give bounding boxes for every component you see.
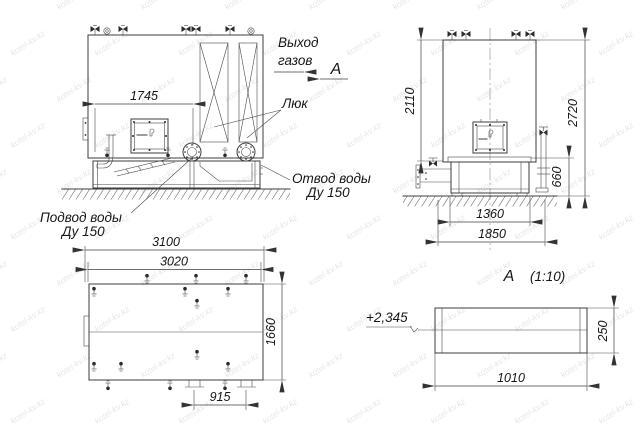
boiler-drawing: 1745 Выход газов А Люк Отвод воды Ду 150… [0,0,644,430]
left-wall-bracket [83,118,88,140]
plan-left-notch [84,316,89,346]
bottom-flange-tabs [185,380,256,387]
door-lock-icon [489,130,493,137]
svg-text:3100: 3100 [152,235,180,249]
dim-1745: 1745 [95,89,193,152]
svg-text:2110: 2110 [403,88,417,116]
detail-a-scale: (1:10) [530,269,565,284]
tank-body-side [443,40,536,162]
water-outlet-flange [237,143,255,161]
gas-duct-hatches [200,43,257,142]
svg-text:660: 660 [550,167,564,188]
valve-icon [192,26,201,36]
svg-text:+2,345: +2,345 [366,310,408,325]
valve-icon [182,26,191,36]
svg-text:3020: 3020 [160,255,188,269]
lifting-lug-icon [104,28,110,34]
drain-pan [200,162,252,181]
view-a-mark: А [330,61,342,78]
valve-handwheel-icon [539,127,548,136]
valve-icon [512,31,521,41]
svg-text:2720: 2720 [566,99,580,128]
detail-a-letter: А [503,268,515,285]
inlet-pipe-elbow [97,135,116,168]
water-inlet-size: Ду 150 [60,224,105,239]
water-outlet-label: Отвод воды [292,171,371,186]
front-annotations: Выход газов А Люк Отвод воды Ду 150 Подв… [40,35,371,239]
duct-section-outline [435,308,587,353]
dim-250: 250 [587,308,619,353]
gas-outlet-label: Выход [278,35,319,50]
top-view: 3100 3020 [84,235,286,410]
door-lock-icon [150,129,154,136]
svg-text:1850: 1850 [478,227,506,241]
dim-660: 660 [531,158,574,196]
base-frame-side [448,157,531,196]
dim-3020: 3020 [88,255,261,283]
dim-1010: 1010 [435,353,587,391]
valve-icon [462,31,471,41]
lifting-lug-icon [248,28,254,34]
side-right-valve-assembly [536,127,550,192]
detail-a-view: А (1:10) +2,345 250 1010 [366,268,619,391]
valve-icon [448,31,457,41]
svg-text:250: 250 [596,321,610,343]
hatch-door-front [131,119,168,153]
technical-drawing-page: kotel-kv.kzkotel-kv.kzkotel-kv.kzkotel-k… [0,0,644,430]
valve-icon [119,26,128,36]
side-view: 2110 2720 660 1360 [403,28,590,250]
ground-side [403,196,557,207]
dim-1660: 1660 [263,284,286,380]
drain-fitting-icon [222,148,227,157]
valve-icon [91,26,100,36]
base-frame-front [93,158,263,188]
dim-915: 915 [194,390,246,410]
water-inlet-label: Подвод воды [40,210,122,225]
svg-text:1745: 1745 [130,89,158,103]
dim-2110: 2110 [403,40,443,161]
svg-text:1010: 1010 [497,371,525,385]
tank-body-front [88,35,263,158]
roof-valve-icons [91,26,255,36]
svg-text:1660: 1660 [264,318,278,346]
valve-handwheel-icon [429,158,438,167]
svg-text:915: 915 [210,390,231,404]
valve-icon [226,26,235,36]
elevation-mark: +2,345 [366,310,418,332]
valve-icon [526,31,535,41]
hatch-label: Люк [281,96,308,111]
water-outlet-size: Ду 150 [305,185,350,200]
svg-text:1360: 1360 [476,207,504,221]
front-view: 1745 Выход газов А Люк Отвод воды Ду 150… [40,26,371,240]
ground-front [62,189,290,200]
gas-outlet-label: газов [278,53,312,68]
